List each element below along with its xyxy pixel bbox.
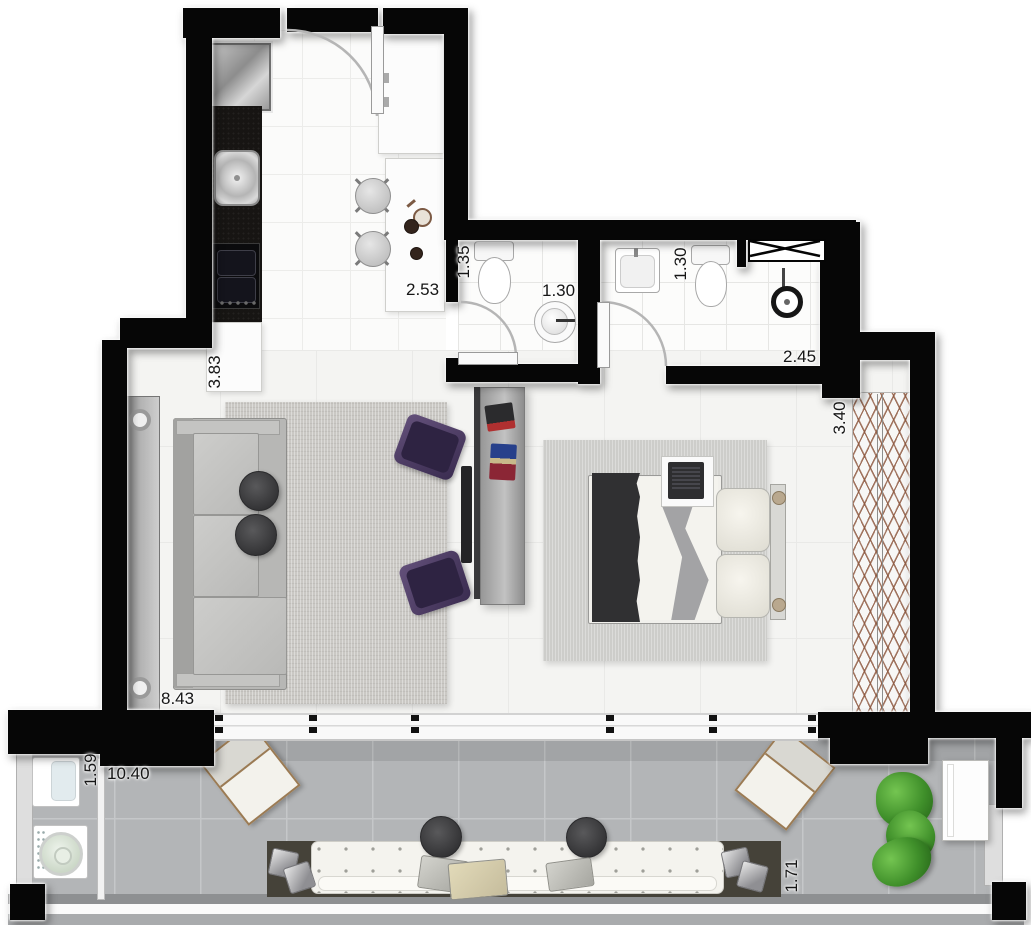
bed-post-icon (772, 598, 786, 612)
door-track-mark (808, 715, 816, 721)
balcony-lounger (942, 760, 989, 841)
dim-balcony-depth: 1.71 (782, 856, 802, 896)
sofa-backrest (173, 418, 193, 688)
kitchen-faucet-icon (207, 163, 212, 189)
balcony-bench-base (318, 876, 717, 891)
door-track-mark (411, 727, 419, 733)
dim-laundry-width: 1.59 (81, 750, 101, 790)
armchair-seat (405, 556, 465, 609)
bed-post-icon (772, 491, 786, 505)
books-icon (489, 443, 517, 480)
washing-machine (33, 825, 88, 879)
laptop-icon (668, 462, 704, 499)
panel-handle-icon (129, 409, 151, 431)
dim-living-span: 8.43 (161, 689, 194, 709)
washer-hub (54, 847, 72, 865)
faucet-icon (634, 248, 638, 257)
burner-icon (217, 277, 256, 303)
bar-stool (355, 178, 389, 212)
entry-door-leaf (371, 26, 384, 114)
stool-seat (355, 178, 391, 214)
armchair-seat (400, 420, 461, 475)
cooktop (212, 243, 260, 309)
lounger-edge (947, 764, 954, 837)
wall-bedroom-right (910, 350, 935, 722)
cabinet-handle (384, 73, 389, 83)
plate-icon (410, 247, 423, 260)
wall-bottom-right (818, 712, 1031, 738)
door-track-mark (215, 715, 223, 721)
coffee-table (235, 514, 277, 556)
bed-pillow (716, 488, 770, 552)
washer-drum-icon (39, 832, 83, 876)
stool-seat (355, 231, 391, 267)
balcony-side-table (566, 817, 607, 858)
dim-bath2-depth: 1.30 (671, 244, 691, 284)
magazines-icon (484, 402, 515, 432)
tv (461, 466, 472, 563)
kitchen-cabinet (378, 28, 444, 154)
door-track-mark (709, 727, 717, 733)
dim-kitchen-width: 2.53 (406, 280, 439, 300)
dim-bath2-width: 2.45 (783, 347, 816, 367)
dim-bath1-width: 1.30 (542, 281, 575, 301)
bed-pillow (716, 554, 770, 618)
wall-balcony-right (996, 736, 1022, 808)
wall-left-step (120, 318, 212, 348)
door-track-mark (808, 727, 816, 733)
balcony-railing-left (16, 752, 33, 896)
duct-shaft (748, 239, 826, 262)
wall-above-entry (287, 8, 378, 32)
plate-icon (404, 219, 419, 234)
bar-stool (355, 231, 389, 265)
fridge (207, 43, 271, 111)
shower-center (784, 299, 790, 305)
pedestal-sink (534, 301, 576, 343)
apartment-floor-plan: 2.53 3.83 1.35 1.30 1.30 2.45 3.40 8.43 … (0, 0, 1031, 925)
sofa-chaise-cushion (193, 597, 287, 675)
door-track-mark (606, 727, 614, 733)
door-track-mark (309, 727, 317, 733)
cabinet-handle (384, 97, 389, 107)
window-panel (124, 396, 160, 714)
door-track-mark (709, 715, 717, 721)
faucet-icon (556, 319, 575, 322)
sink-drain-icon (234, 175, 240, 181)
panel-handle-icon (129, 677, 151, 699)
bench-pillow (447, 859, 508, 901)
bathroom2-door-leaf (597, 302, 610, 368)
burner-icon (217, 250, 256, 276)
wall-northeast (836, 222, 860, 340)
shower-head-icon (771, 286, 803, 318)
balcony-railing-shadow (8, 914, 1024, 925)
bed-blanket (592, 473, 640, 622)
laptop-keyboard (672, 466, 700, 489)
bathroom1-door-leaf (458, 352, 518, 365)
dim-bath1-depth: 1.35 (454, 242, 474, 282)
door-track-mark (309, 715, 317, 721)
laundry-sink (32, 757, 80, 807)
door-track-mark (606, 715, 614, 721)
laundry-sink-bowl (51, 761, 76, 801)
dim-kitchen-length: 3.83 (205, 352, 225, 392)
toilet-bowl (478, 257, 511, 304)
balcony-side-table (420, 816, 462, 858)
dim-balcony-span: 10.40 (107, 764, 150, 784)
dim-bedroom-width: 3.40 (830, 398, 850, 438)
toilet-bowl (695, 261, 727, 307)
kitchen-sink (214, 150, 260, 206)
wardrobe-rod (877, 394, 883, 715)
coffee-table (239, 471, 279, 511)
cooktop-knobs (218, 301, 256, 305)
wall-kitchen-right (444, 25, 468, 238)
door-track-mark (411, 715, 419, 721)
door-track-mark (215, 727, 223, 733)
sofa-base-rail (176, 673, 280, 687)
sink-basin (620, 255, 655, 288)
balcony-railing-glass (8, 904, 1024, 914)
wall-bathrooms-top (444, 220, 856, 240)
sliding-glass-door (214, 713, 818, 741)
